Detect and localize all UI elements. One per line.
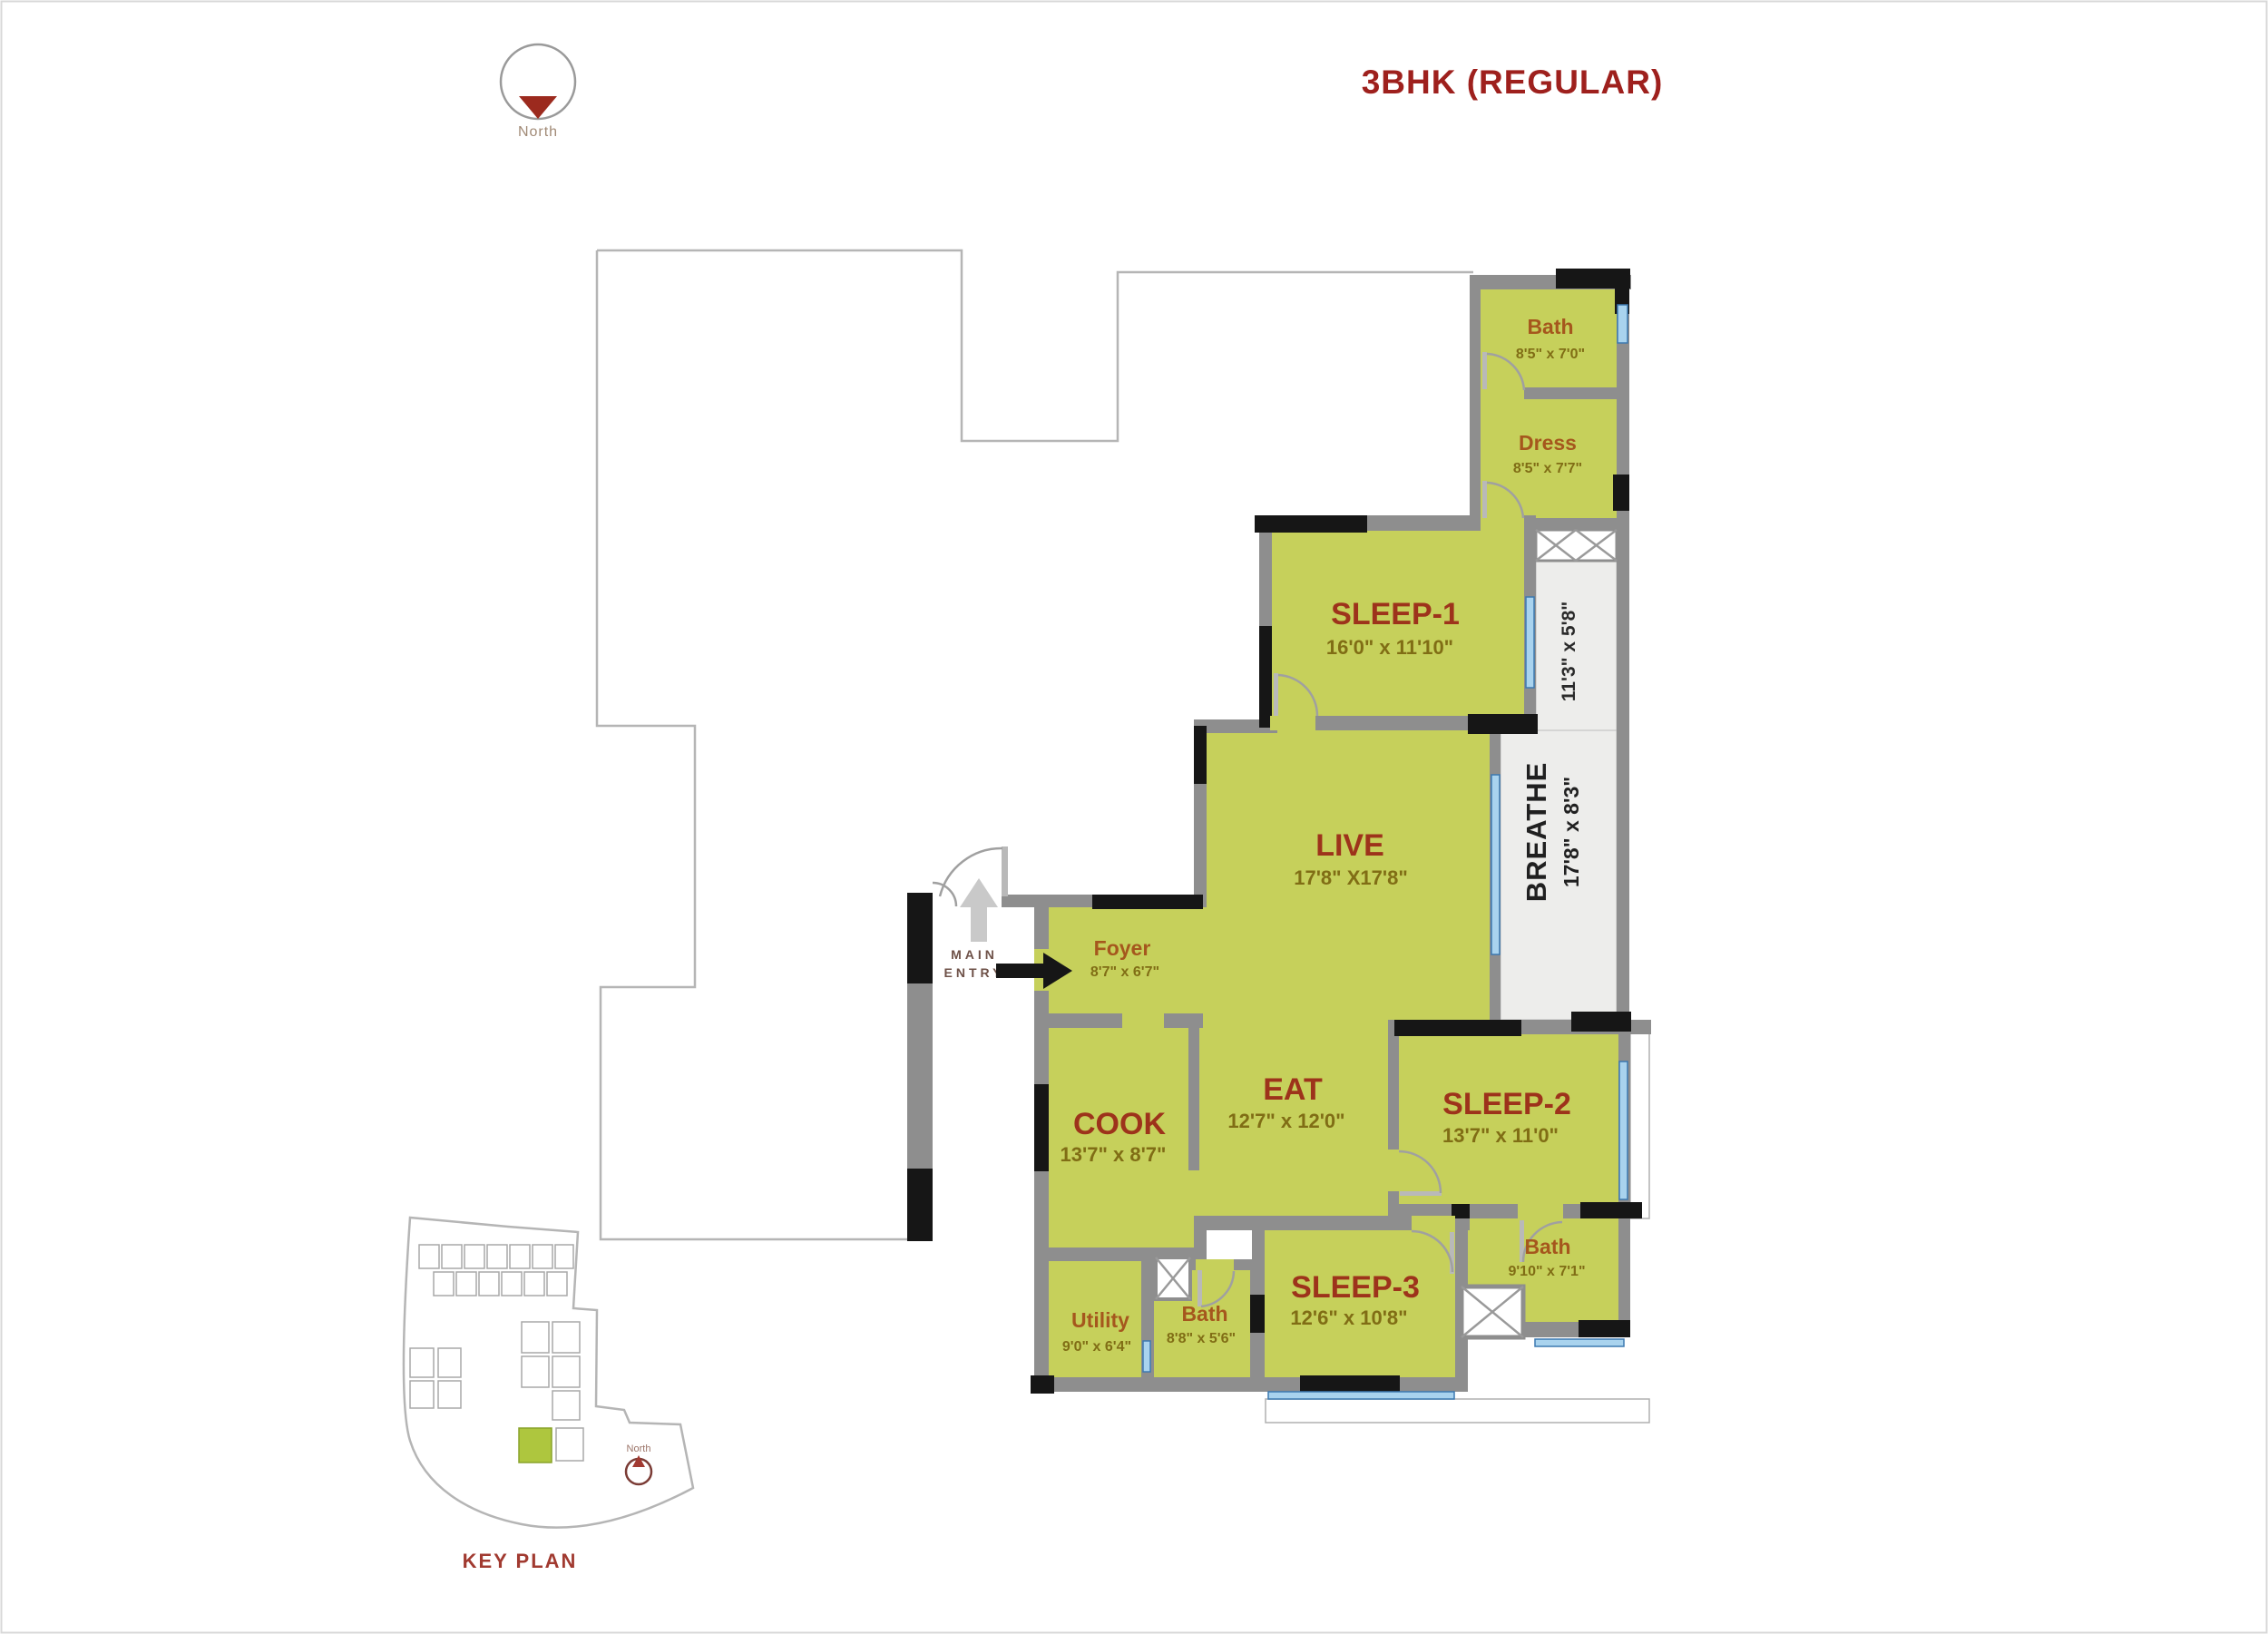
bath1-dims: 8'5" x 7'0" (1516, 347, 1585, 362)
compass-label: North (518, 124, 558, 140)
cook-dims: 13'7" x 8'7" (1061, 1143, 1167, 1166)
sleep1-window (1526, 597, 1534, 688)
utility-dims: 9'0" x 6'4" (1062, 1339, 1131, 1355)
floor-plan-page: North 3BHK (REGULAR) (0, 0, 2268, 1634)
bath2-dims: 8'8" x 5'6" (1167, 1331, 1236, 1346)
floor-plan-drawing: North 3BHK (REGULAR) (0, 0, 2268, 1634)
sleep3-name: SLEEP-3 (1291, 1270, 1420, 1305)
balcony-breathe-area (1501, 730, 1617, 1020)
bath3-name: Bath (1524, 1235, 1570, 1258)
utility-name: Utility (1071, 1308, 1129, 1332)
main-entry-label-1: MAIN (951, 947, 998, 962)
breathe-dims: 17'8" x 8'3" (1559, 777, 1583, 887)
dress-dims: 8'5" x 7'7" (1513, 461, 1582, 476)
key-plan-north-label: North (627, 1443, 651, 1454)
foyer-name: Foyer (1094, 936, 1151, 960)
live-dims: 17'8" X17'8" (1294, 866, 1408, 889)
live-window (1491, 775, 1500, 954)
balcony-upper-dims: 11'3" x 5'8" (1559, 602, 1579, 702)
entry-arrow-icon (996, 964, 1043, 978)
eat-name: EAT (1263, 1072, 1323, 1107)
bath3-window (1535, 1339, 1624, 1346)
page-title: 3BHK (REGULAR) (1362, 64, 1664, 101)
breathe-name: BREATHE (1520, 762, 1552, 903)
live-name: LIVE (1315, 828, 1384, 863)
bath2-name: Bath (1181, 1302, 1227, 1326)
key-plan-highlighted-unit (519, 1428, 552, 1463)
balcony-hatch (1536, 530, 1617, 561)
sleep3-window (1268, 1392, 1454, 1399)
entry-direction-arrow-body (971, 904, 987, 942)
utility-window (1143, 1341, 1150, 1372)
east-ledge (1630, 1030, 1649, 1218)
bath1-window (1618, 305, 1628, 343)
entry-door-leaf (1002, 846, 1008, 896)
main-entry-label-2: ENTRY (944, 965, 1005, 980)
sleep2-dims: 13'7" x 11'0" (1442, 1124, 1559, 1147)
dress-name: Dress (1519, 431, 1577, 455)
sleep2-window (1619, 1062, 1628, 1199)
bath1-name: Bath (1527, 315, 1573, 338)
dress-floor (1475, 394, 1620, 523)
sleep1-dims: 16'0" x 11'10" (1326, 636, 1453, 659)
sleep2-name: SLEEP-2 (1442, 1087, 1571, 1121)
key-plan-label: KEY PLAN (463, 1550, 578, 1572)
foyer-dims: 8'7" x 6'7" (1090, 964, 1159, 980)
bath3-dims: 9'10" x 7'1" (1508, 1264, 1585, 1279)
eat-dims: 12'7" x 12'0" (1227, 1110, 1344, 1132)
cook-name: COOK (1073, 1107, 1166, 1141)
sleep3-dims: 12'6" x 10'8" (1290, 1306, 1407, 1329)
sleep1-name: SLEEP-1 (1331, 597, 1460, 631)
south-ledge (1266, 1399, 1649, 1423)
